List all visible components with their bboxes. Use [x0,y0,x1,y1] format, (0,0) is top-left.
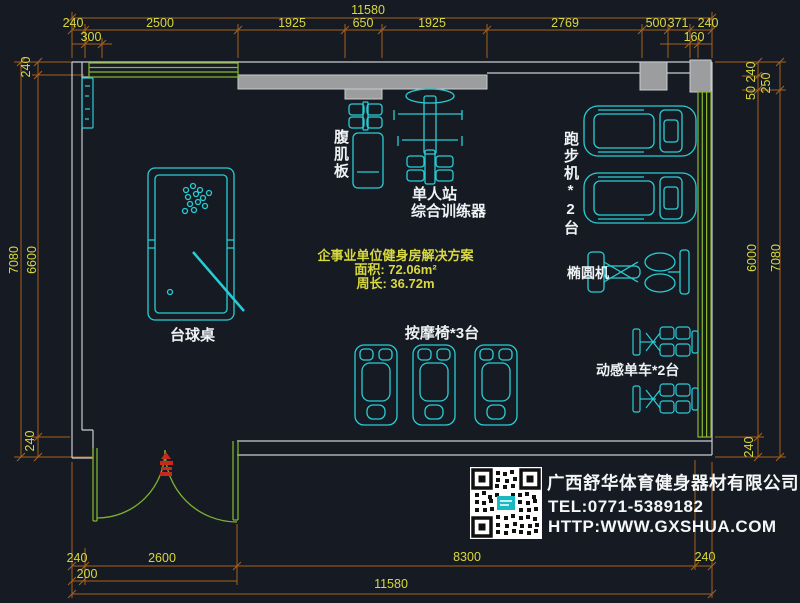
qr-pattern [470,467,542,539]
dim-top-240b: 240 [683,16,733,30]
dim-right-50: 50 [744,80,758,106]
dim-left-6600: 6600 [25,230,39,290]
column-2 [690,60,711,92]
dim-right-250: 250 [759,63,773,103]
qr-center-logo [497,496,515,510]
company-tel: TEL:0771-5389182 [548,497,703,517]
dim-right-240-bottom: 240 [742,427,756,467]
dim-bottom-overall: 11580 [351,577,431,591]
label-abs-board: 腹肌板 [330,129,351,180]
dim-left-240-bottom: 240 [23,421,37,461]
dim-top-650: 650 [338,16,388,30]
dim-right-6000: 6000 [745,228,759,288]
dim-bottom-200: 200 [62,567,112,581]
cue-stick [193,252,244,311]
dim-top-300: 300 [66,30,116,44]
label-spin-bikes: 动感单车*2台 [596,362,679,378]
dim-top-overall: 11580 [328,3,408,17]
pool-balls [168,184,212,295]
dim-bottom-8300: 8300 [432,550,502,564]
plan-perimeter: 周长: 36.72m [293,273,498,292]
dim-top-1925a: 1925 [257,16,327,30]
qr-code [470,467,542,539]
label-trainer-line1: 单人站 [412,187,457,203]
label-treadmills: 跑步机*2台 [560,131,581,237]
label-elliptical: 椭圆机 [567,265,609,281]
dim-top-1925b: 1925 [397,16,467,30]
dim-bottom-2600: 2600 [127,551,197,565]
floor-plan-canvas: 11580 240 2500 1925 650 1925 2769 500 37… [0,0,800,603]
wall-sign [82,78,93,128]
dim-top-2500: 2500 [125,16,195,30]
treadmill-drawings [584,106,696,223]
pool-table-drawing [148,168,244,320]
window-top [89,63,238,77]
dim-left-7080: 7080 [7,230,21,290]
company-name: 广西舒华体育健身器材有限公司 [547,470,799,495]
abs-board-drawing [349,102,383,188]
dim-top-240a: 240 [48,16,98,30]
dim-right-7080: 7080 [769,228,783,288]
column-1 [640,62,667,90]
dim-top-160: 160 [669,30,719,44]
window-right [698,92,711,437]
company-website: HTTP:WWW.GXSHUA.COM [548,517,777,537]
label-massage-chairs: 按摩椅*3台 [397,326,487,342]
wall-solid-segments [238,60,711,99]
label-trainer-line2: 综合训练器 [411,204,486,220]
dim-bottom-240b: 240 [680,550,730,564]
dim-top-2769: 2769 [530,16,600,30]
dim-left-240-top: 240 [19,47,33,87]
massage-chair-drawings [355,345,517,425]
label-pool-table: 台球桌 [150,328,235,344]
door-marker-icon [160,452,173,476]
dim-bottom-240a: 240 [52,551,102,565]
single-station-trainer-drawing [394,89,462,184]
